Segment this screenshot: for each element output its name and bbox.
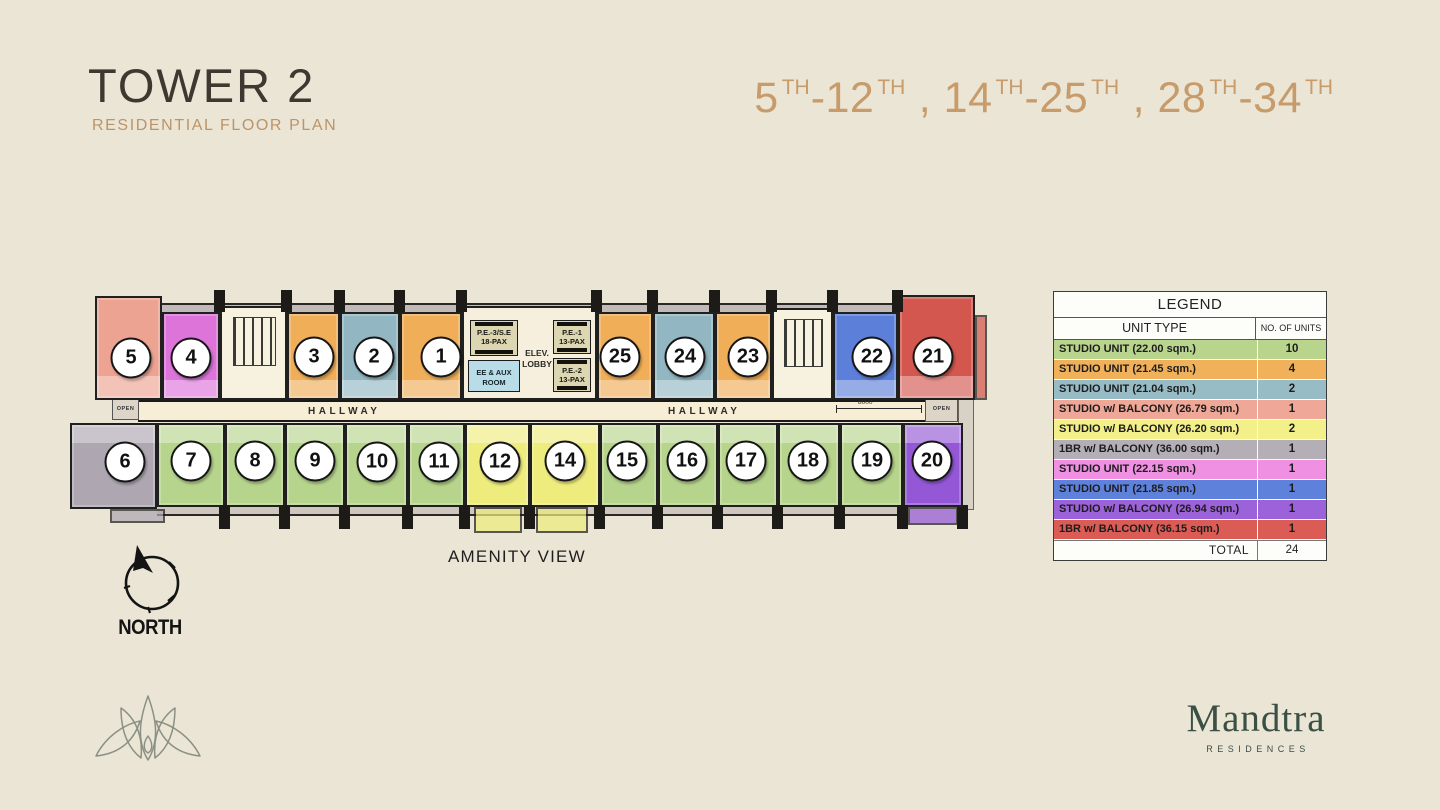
unit-number-25: 25 xyxy=(600,337,641,378)
column-mark xyxy=(709,290,720,312)
legend-row-label: STUDIO w/ BALCONY (26.20 sqm.) xyxy=(1054,420,1257,439)
legend-row-count: 1 xyxy=(1257,480,1326,499)
legend-col-count: NO. OF UNITS xyxy=(1255,318,1326,339)
legend-total-label: TOTAL xyxy=(1054,541,1257,560)
elevator-pe1: P.E.-1 13-PAX xyxy=(553,320,591,354)
legend-row: STUDIO w/ BALCONY (26.20 sqm.)2 xyxy=(1054,420,1326,440)
legend-row-label: STUDIO w/ BALCONY (26.79 sqm.) xyxy=(1054,400,1257,419)
unit-number-8: 8 xyxy=(235,441,276,482)
elevator-pe3: P.E.-3/S.E 18-PAX xyxy=(470,320,518,356)
unit-number-9: 9 xyxy=(295,441,336,482)
ee-aux-room-label2: ROOM xyxy=(469,378,519,388)
brand-logo: Mandtra RESIDENCES xyxy=(1176,698,1336,754)
legend-row-label: 1BR w/ BALCONY (36.15 sqm.) xyxy=(1054,520,1257,539)
legend-row-count: 10 xyxy=(1257,340,1326,359)
elevator-pe2-label: P.E.-2 xyxy=(554,366,590,375)
unit-20-balcony xyxy=(908,507,958,525)
column-mark xyxy=(766,290,777,312)
legend-header-row: UNIT TYPE NO. OF UNITS xyxy=(1054,318,1326,340)
legend-row-count: 1 xyxy=(1257,520,1326,539)
elevator-lobby-label: ELEV. LOBBY xyxy=(520,348,554,369)
unit-number-16: 16 xyxy=(667,441,708,482)
unit-number-2: 2 xyxy=(354,337,395,378)
legend-title: LEGEND xyxy=(1054,292,1326,318)
elevator-pe3-label: P.E.-3/S.E xyxy=(471,328,517,337)
column-mark xyxy=(339,505,350,529)
ee-aux-room-label: EE & AUX xyxy=(469,368,519,378)
column-mark xyxy=(402,505,413,529)
column-mark xyxy=(459,505,470,529)
stair-steps-icon xyxy=(784,319,822,367)
unit-number-4: 4 xyxy=(171,338,212,379)
column-mark xyxy=(652,505,663,529)
unit-14-balcony xyxy=(536,507,588,533)
legend-row: STUDIO UNIT (21.04 sqm.)2 xyxy=(1054,380,1326,400)
legend-rows: STUDIO UNIT (22.00 sqm.)10STUDIO UNIT (2… xyxy=(1054,340,1326,540)
column-mark xyxy=(897,505,908,529)
unit-number-11: 11 xyxy=(419,442,460,483)
slide-background: TOWER 2 RESIDENTIAL FLOOR PLAN 5TH-12TH … xyxy=(0,0,1440,810)
north-label: NORTH xyxy=(115,616,185,640)
brand-name: Mandtra xyxy=(1176,698,1336,741)
legend-row-label: STUDIO w/ BALCONY (26.94 sqm.) xyxy=(1054,500,1257,519)
legend-row-label: 1BR w/ BALCONY (36.00 sqm.) xyxy=(1054,440,1257,459)
column-mark xyxy=(281,290,292,312)
legend-row: STUDIO w/ BALCONY (26.94 sqm.)1 xyxy=(1054,500,1326,520)
unit-number-24: 24 xyxy=(665,337,706,378)
column-mark xyxy=(892,290,903,312)
column-mark xyxy=(219,505,230,529)
legend-row-label: STUDIO UNIT (21.85 sqm.) xyxy=(1054,480,1257,499)
legend-row: STUDIO UNIT (21.85 sqm.)1 xyxy=(1054,480,1326,500)
stairwell-right xyxy=(772,308,833,400)
unit-number-21: 21 xyxy=(913,337,954,378)
unit-number-3: 3 xyxy=(294,337,335,378)
unit-number-10: 10 xyxy=(357,442,398,483)
column-mark xyxy=(524,505,535,529)
stair-steps-icon xyxy=(233,317,275,366)
dimension-value: 8000 xyxy=(858,399,872,406)
unit-number-6: 6 xyxy=(105,442,146,483)
elevator-pe3-capacity: 18-PAX xyxy=(471,337,517,346)
north-compass-icon xyxy=(112,543,194,615)
legend-row: STUDIO UNIT (21.45 sqm.)4 xyxy=(1054,360,1326,380)
unit-number-22: 22 xyxy=(852,337,893,378)
unit-number-1: 1 xyxy=(421,337,462,378)
column-mark xyxy=(214,290,225,312)
unit-21-balcony xyxy=(975,315,987,400)
unit-number-14: 14 xyxy=(545,441,586,482)
column-mark xyxy=(712,505,723,529)
legend-row: STUDIO UNIT (22.15 sqm.)1 xyxy=(1054,460,1326,480)
hallway-label-left: HALLWAY xyxy=(308,406,380,417)
column-mark xyxy=(957,505,968,529)
legend-row-count: 1 xyxy=(1257,400,1326,419)
column-mark xyxy=(456,290,467,312)
lotus-logo-icon xyxy=(92,694,204,778)
amenity-view-label: AMENITY VIEW xyxy=(448,547,586,567)
column-mark xyxy=(772,505,783,529)
legend-col-unit-type: UNIT TYPE xyxy=(1054,318,1255,339)
unit-number-20: 20 xyxy=(912,441,953,482)
hallway-label-right: HALLWAY xyxy=(668,406,740,417)
column-mark xyxy=(591,290,602,312)
column-mark xyxy=(647,290,658,312)
unit-number-23: 23 xyxy=(728,337,769,378)
elevator-pe1-capacity: 13-PAX xyxy=(554,337,590,346)
legend-row: STUDIO w/ BALCONY (26.79 sqm.)1 xyxy=(1054,400,1326,420)
legend-row-count: 1 xyxy=(1257,500,1326,519)
elevator-pe2: P.E.-2 13-PAX xyxy=(553,358,591,392)
elevator-pe2-capacity: 13-PAX xyxy=(554,375,590,384)
open-area-left: OPEN xyxy=(112,398,139,420)
unit-number-12: 12 xyxy=(480,442,521,483)
legend-row-count: 1 xyxy=(1257,440,1326,459)
unit-number-15: 15 xyxy=(607,441,648,482)
unit-6-balcony xyxy=(110,509,165,523)
elevator-core: P.E.-3/S.E 18-PAX EE & AUX ROOM ELEV. LO… xyxy=(462,306,597,400)
column-mark xyxy=(827,290,838,312)
unit-12-balcony xyxy=(474,507,522,533)
legend-row-count: 2 xyxy=(1257,420,1326,439)
column-mark xyxy=(594,505,605,529)
brand-subtitle: RESIDENCES xyxy=(1180,744,1336,754)
column-mark xyxy=(834,505,845,529)
ee-aux-room: EE & AUX ROOM xyxy=(468,360,520,392)
elevator-pe1-label: P.E.-1 xyxy=(554,328,590,337)
legend-row-label: STUDIO UNIT (21.04 sqm.) xyxy=(1054,380,1257,399)
legend-row: STUDIO UNIT (22.00 sqm.)10 xyxy=(1054,340,1326,360)
legend-row: 1BR w/ BALCONY (36.00 sqm.)1 xyxy=(1054,440,1326,460)
legend-row-count: 1 xyxy=(1257,460,1326,479)
legend-table: LEGEND UNIT TYPE NO. OF UNITS STUDIO UNI… xyxy=(1053,291,1327,561)
unit-number-7: 7 xyxy=(171,441,212,482)
unit-number-5: 5 xyxy=(111,338,152,379)
legend-total-count: 24 xyxy=(1257,541,1326,560)
legend-total-row: TOTAL 24 xyxy=(1054,540,1326,560)
legend-row-count: 4 xyxy=(1257,360,1326,379)
stairwell-left xyxy=(220,306,287,400)
column-mark xyxy=(394,290,405,312)
column-mark xyxy=(334,290,345,312)
legend-row: 1BR w/ BALCONY (36.15 sqm.)1 xyxy=(1054,520,1326,540)
legend-row-count: 2 xyxy=(1257,380,1326,399)
unit-number-18: 18 xyxy=(788,441,829,482)
unit-number-17: 17 xyxy=(726,441,767,482)
unit-number-19: 19 xyxy=(852,441,893,482)
legend-row-label: STUDIO UNIT (21.45 sqm.) xyxy=(1054,360,1257,379)
legend-row-label: STUDIO UNIT (22.15 sqm.) xyxy=(1054,460,1257,479)
column-mark xyxy=(279,505,290,529)
dimension-line xyxy=(836,408,922,409)
legend-row-label: STUDIO UNIT (22.00 sqm.) xyxy=(1054,340,1257,359)
hallway: HALLWAY HALLWAY xyxy=(138,400,958,422)
